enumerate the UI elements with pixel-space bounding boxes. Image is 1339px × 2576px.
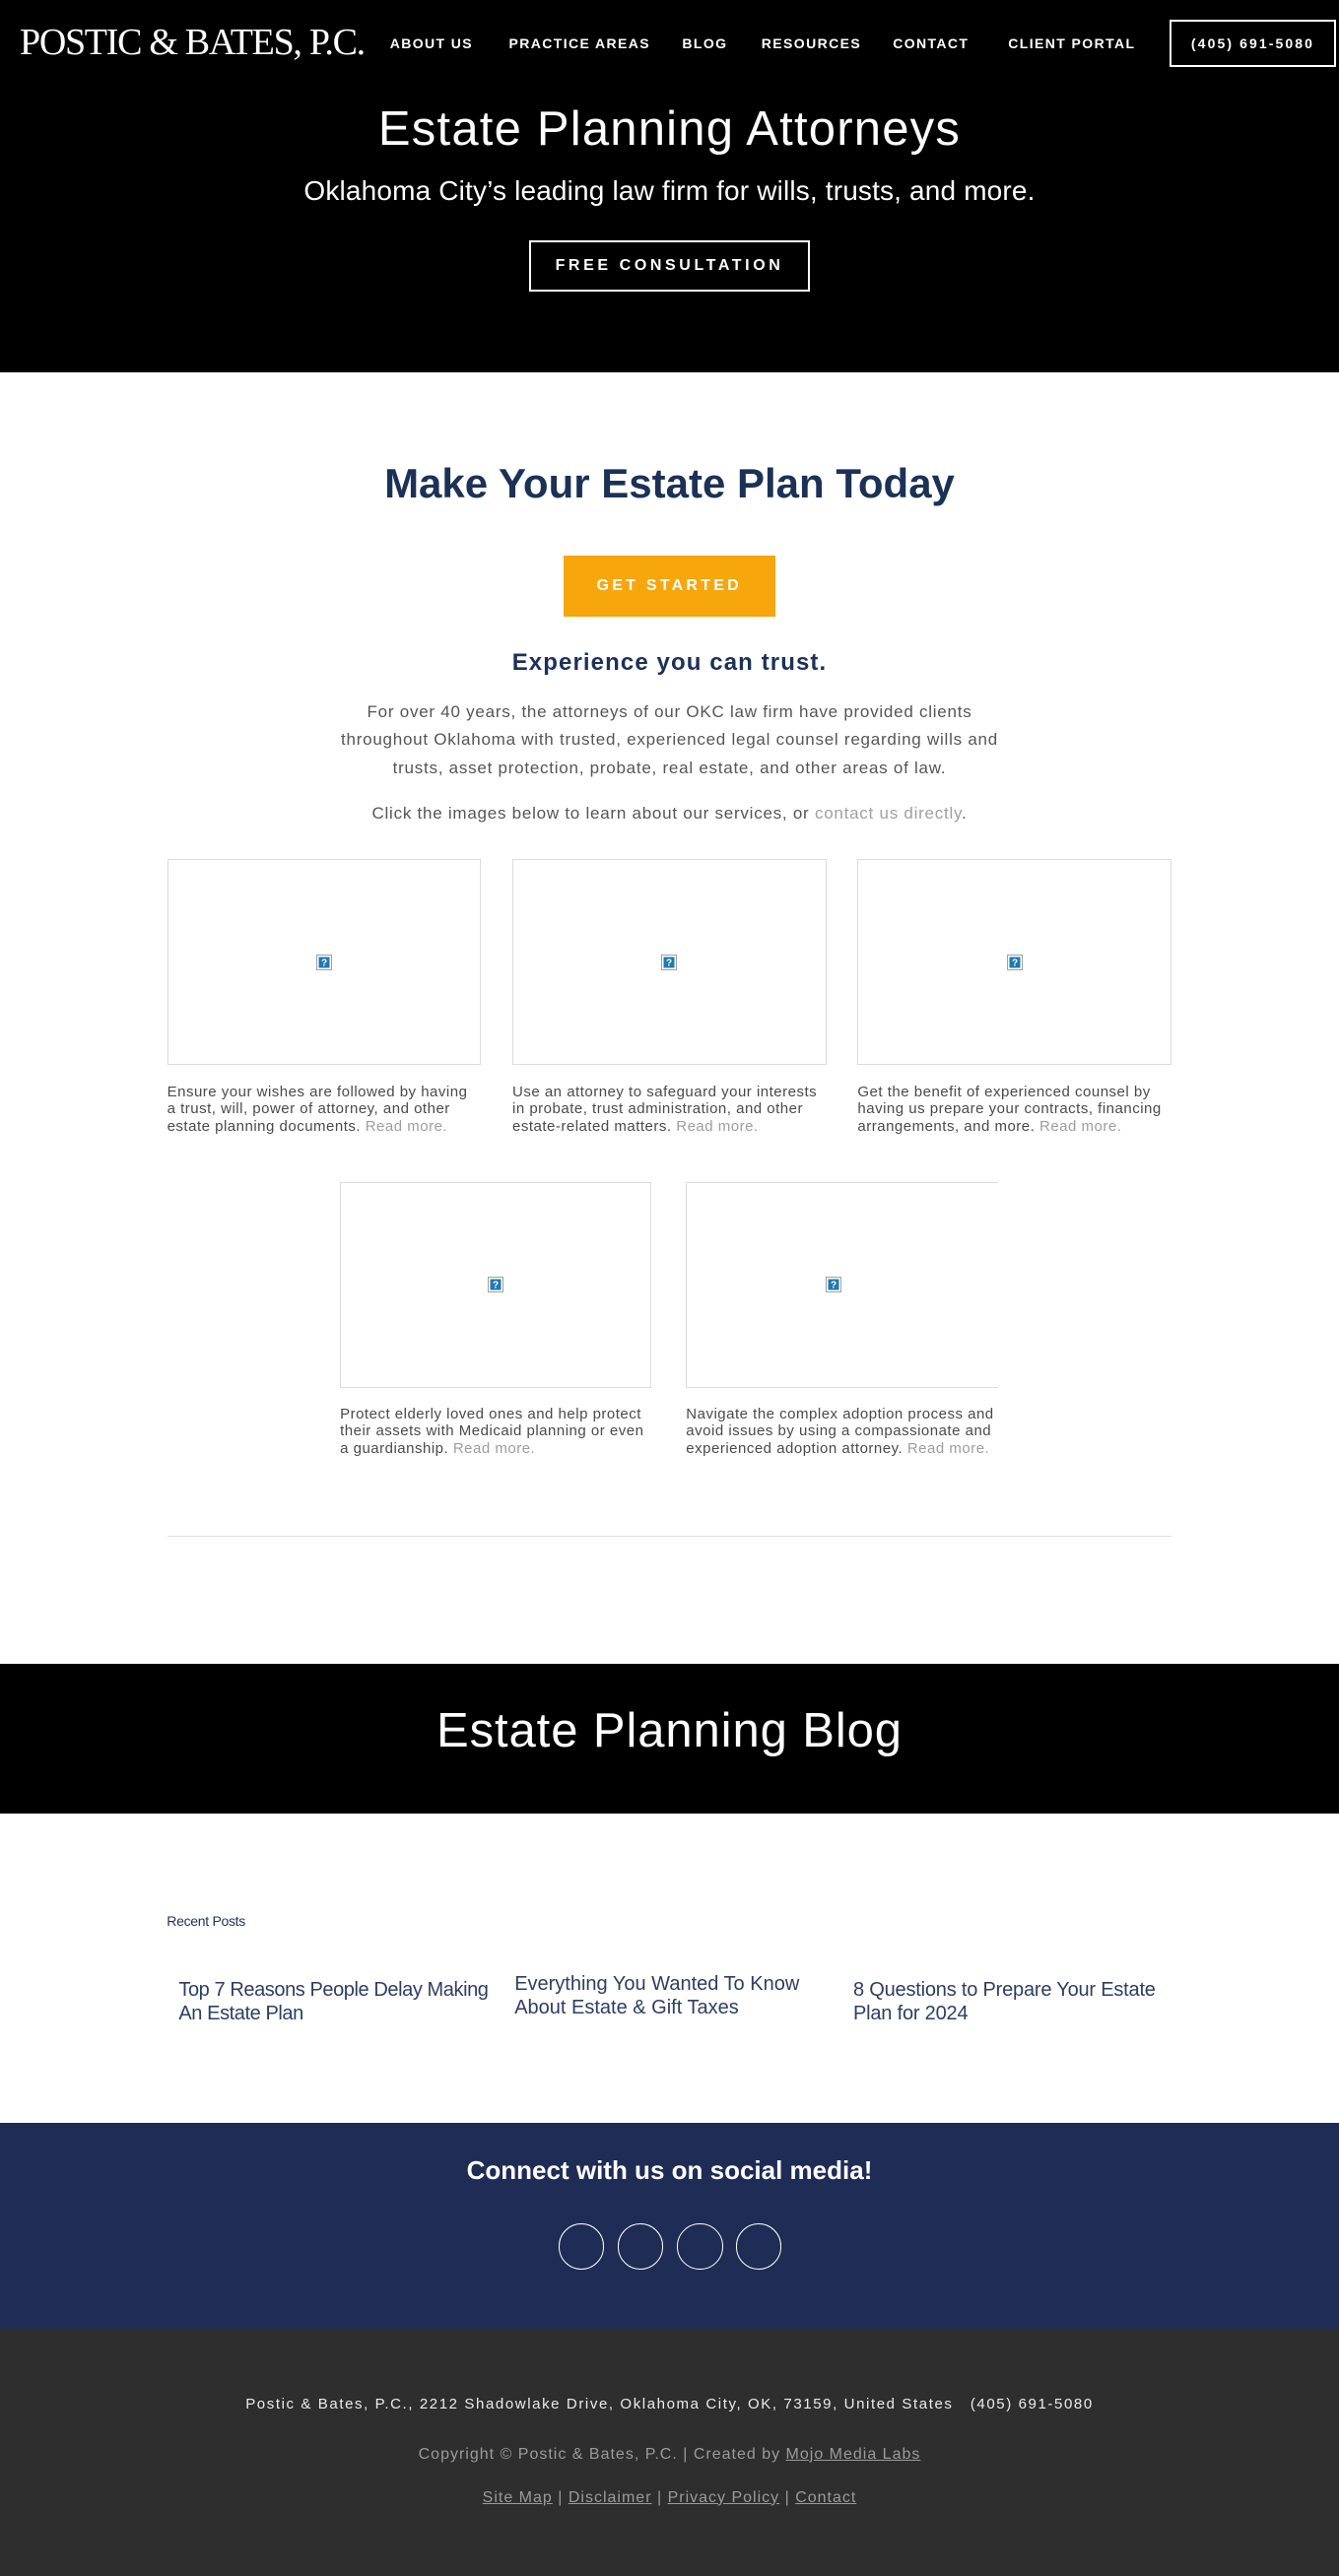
svg-text:?: ?: [1012, 958, 1018, 968]
svg-text:?: ?: [493, 1281, 499, 1291]
svg-text:?: ?: [321, 958, 327, 968]
svg-text:?: ?: [666, 958, 672, 968]
svg-text:?: ?: [831, 1281, 837, 1291]
